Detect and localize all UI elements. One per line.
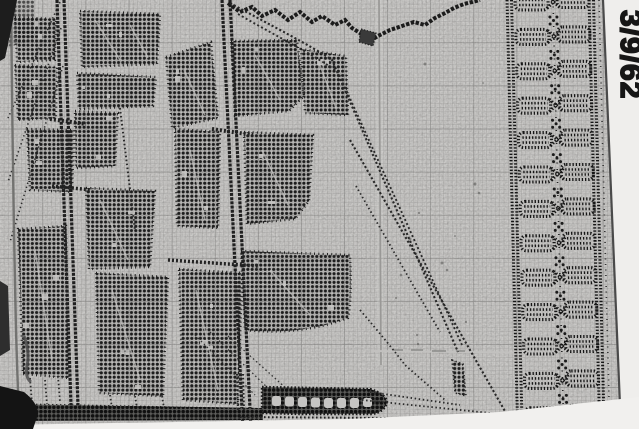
svg-text:3/9/62: 3/9/62 xyxy=(614,10,639,99)
